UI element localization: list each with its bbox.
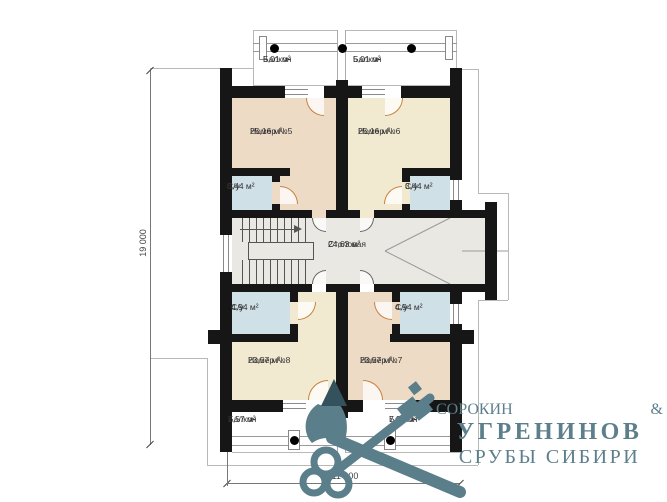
wall-bath7-bottom <box>390 334 462 342</box>
logo-ampersand: & <box>651 401 663 419</box>
room-area: 25,16 м² <box>358 126 390 137</box>
wall-bottom <box>220 400 283 412</box>
wall-bath5-top <box>232 168 290 176</box>
log-end <box>445 36 453 60</box>
wall-stub-left <box>208 330 220 344</box>
stairs-direction-arrow <box>240 229 296 230</box>
window <box>285 86 308 98</box>
wall-dining-bottom <box>374 284 450 292</box>
stairs-landing <box>248 242 314 260</box>
wall-bath6-top <box>402 168 462 176</box>
balcony-top-divider <box>337 30 346 86</box>
wall-top <box>401 86 462 98</box>
logo-name-2: УГРЕНИНОВ <box>436 419 663 445</box>
railing-post-dot <box>270 44 279 53</box>
logo-name-1: СОРОКИН <box>436 401 513 419</box>
logo-line-1: СОРОКИН & <box>436 401 663 419</box>
railing-post-dot <box>407 44 416 53</box>
company-logo-text: СОРОКИН & УГРЕНИНОВ СРУБЫ СИБИРИ <box>436 401 663 470</box>
balcony-top-railing <box>253 43 457 44</box>
wall-bath5-side <box>272 168 280 182</box>
wall-bath7-side <box>392 324 400 334</box>
room-area: 3,44 м² <box>405 181 433 192</box>
dimension-line-vertical <box>150 70 151 445</box>
room-area: 3,44 м² <box>227 181 255 192</box>
room-area: 4,94 м² <box>231 302 259 313</box>
room-area: 23,57 м² <box>360 355 392 366</box>
window <box>450 304 462 324</box>
room-area: 5,01 м² <box>353 54 381 65</box>
wall-dining-top <box>374 210 450 218</box>
wall-dining-bottom <box>326 284 360 292</box>
wall-center-upper <box>336 80 348 218</box>
wall-bath8-side <box>290 324 298 334</box>
wall-bath8-bottom <box>232 334 298 342</box>
window <box>362 86 385 98</box>
wall-bath8-side <box>290 292 298 302</box>
stairs-lower-flight <box>236 260 312 284</box>
room-area: 7,57 м² <box>228 414 256 425</box>
logo-tagline: СРУБЫ СИБИРИ <box>436 445 663 470</box>
wall-bath5-side <box>272 204 280 218</box>
dimension-extension <box>227 452 228 486</box>
wall-bath6-side <box>402 204 410 218</box>
wall-stub-right <box>462 330 474 344</box>
wall-dining-bottom <box>232 284 312 292</box>
door-opening <box>308 86 324 98</box>
room-area: 25,16 м² <box>250 126 282 137</box>
wall-bath6-side <box>402 168 410 182</box>
balcony-top-railing <box>253 51 457 52</box>
window <box>450 180 462 200</box>
room-area: 4,94 м² <box>395 302 423 313</box>
wall-bath7-side <box>392 292 400 302</box>
room-area: 5,01 м² <box>263 54 291 65</box>
railing-post-dot <box>338 44 347 53</box>
wall-bay-right <box>485 202 497 300</box>
wall-dining-top <box>326 210 360 218</box>
stairs-arrow-head <box>294 225 302 233</box>
room-area: 23,57 м² <box>248 355 280 366</box>
stairwell-window <box>220 235 232 272</box>
wall-top <box>220 86 285 98</box>
floor-plan-canvas: 19 000 11 000 Балкон 5,01 м² Балкон 5,01… <box>0 0 667 502</box>
room-area: 24,63 м² <box>328 239 360 250</box>
door-opening <box>385 86 401 98</box>
dimension-height-label: 19 000 <box>138 218 148 268</box>
